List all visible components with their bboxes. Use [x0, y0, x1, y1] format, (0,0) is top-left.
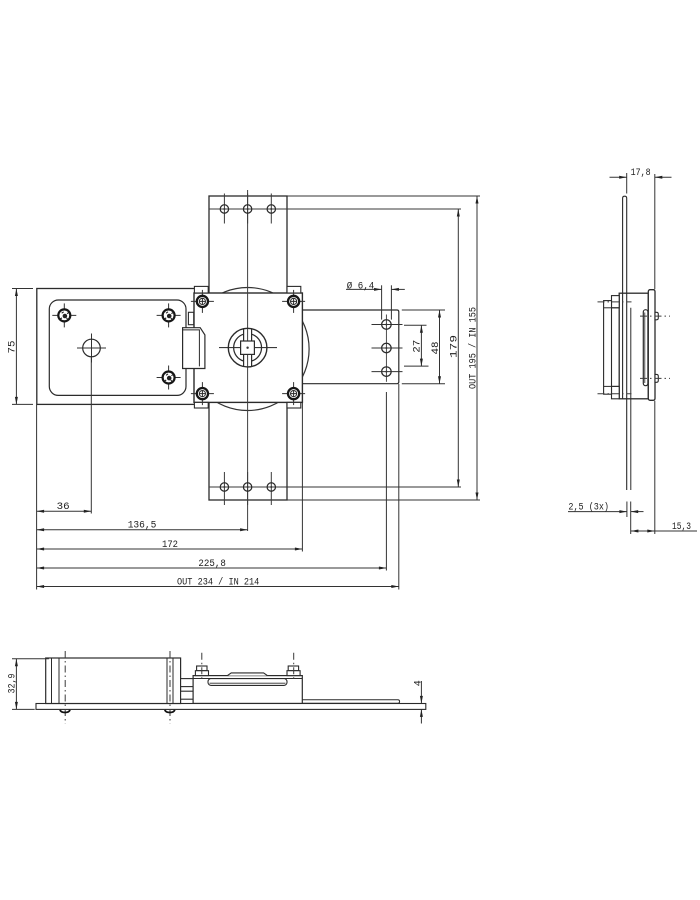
svg-text:48: 48 [431, 342, 442, 355]
svg-text:OUT 234 / IN 214: OUT 234 / IN 214 [177, 576, 259, 588]
svg-text:179: 179 [450, 335, 461, 358]
svg-text:OUT 195 / IN 155: OUT 195 / IN 155 [467, 307, 479, 389]
svg-text:32,9: 32,9 [8, 674, 19, 694]
svg-text:75: 75 [8, 341, 19, 354]
svg-text:36: 36 [57, 502, 70, 513]
svg-text:2,5 (3x): 2,5 (3x) [568, 501, 609, 513]
svg-text:4: 4 [414, 680, 425, 686]
svg-text:Ø 6,4: Ø 6,4 [347, 280, 374, 292]
svg-text:136,5: 136,5 [128, 521, 157, 532]
svg-text:172: 172 [162, 540, 178, 551]
svg-text:225,8: 225,8 [198, 559, 226, 570]
svg-text:27: 27 [413, 340, 424, 353]
svg-text:17,8: 17,8 [631, 168, 651, 179]
svg-text:15,3: 15,3 [672, 522, 691, 533]
